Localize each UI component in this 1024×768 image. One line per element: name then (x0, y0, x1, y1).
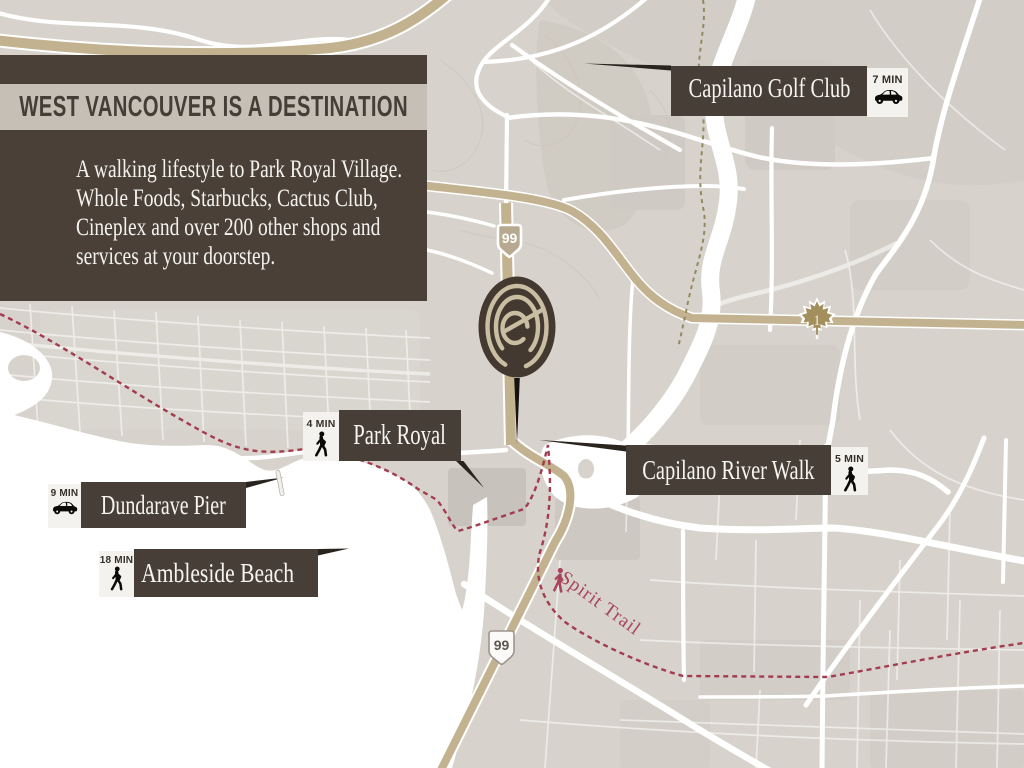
svg-text:1: 1 (814, 313, 821, 329)
svg-text:99: 99 (494, 637, 510, 653)
svg-text:99: 99 (502, 230, 518, 246)
